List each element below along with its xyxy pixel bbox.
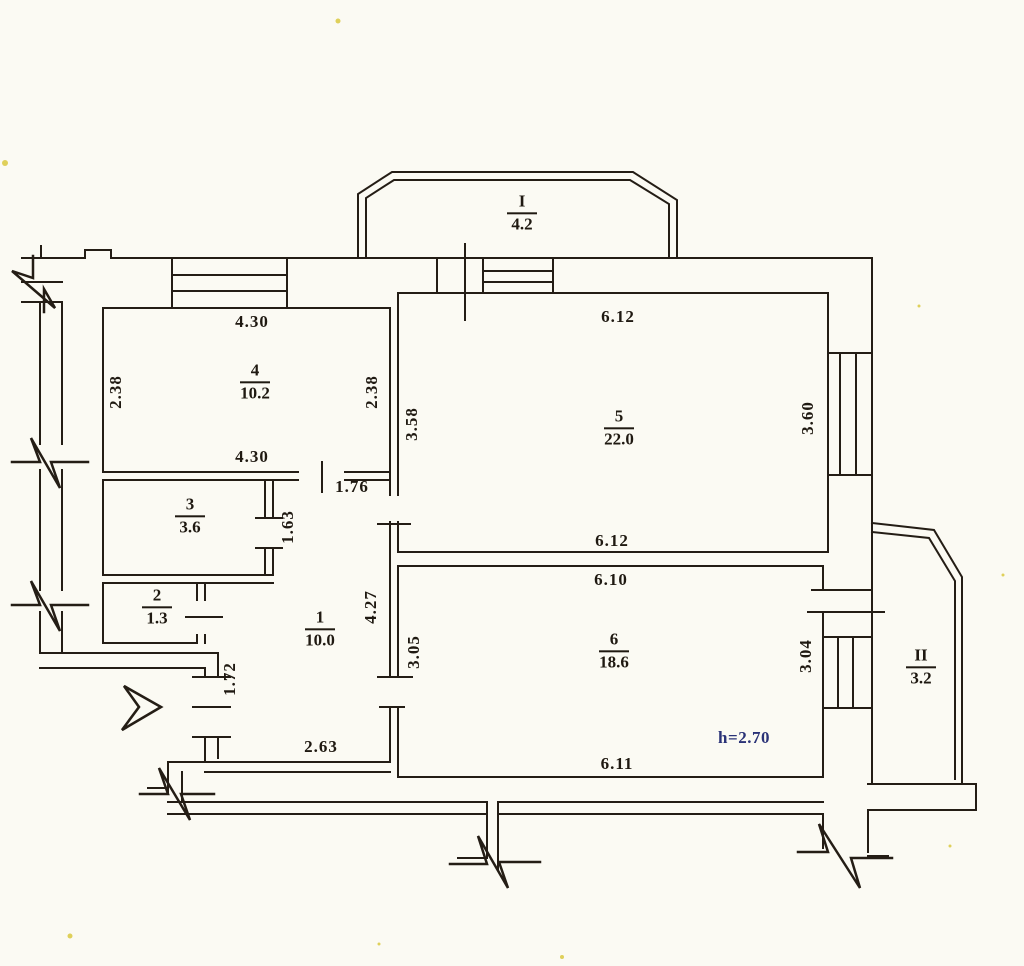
window-room4-top xyxy=(172,258,287,308)
window-room6-right xyxy=(823,637,870,708)
room-number: 2 xyxy=(142,586,172,608)
dim-hall-closet: 1.63 xyxy=(278,510,298,544)
floor-plan-page: I 4.2 4 10.2 5 22.0 3 3.6 2 1.3 1 10.0 6… xyxy=(0,0,1024,966)
dim-room5-right: 3.60 xyxy=(798,401,818,435)
room-area: 18.6 xyxy=(599,652,629,672)
dim-room4-right: 2.38 xyxy=(362,375,382,409)
dim-room5-top: 6.12 xyxy=(601,307,635,327)
balcony-number: I xyxy=(507,192,537,214)
break-marks xyxy=(12,256,892,888)
balcony-area: 3.2 xyxy=(906,668,936,688)
room-1-label: 1 10.0 xyxy=(305,608,335,649)
window-room5-right xyxy=(828,353,872,475)
room-area: 3.6 xyxy=(175,517,205,537)
room-number: 3 xyxy=(175,495,205,517)
balcony-number: II xyxy=(906,646,936,668)
floor-plan-drawing xyxy=(0,0,1024,966)
dim-room6-left: 3.05 xyxy=(404,635,424,669)
dim-room4-left: 2.38 xyxy=(106,375,126,409)
room-number: 4 xyxy=(240,361,270,383)
dim-room5-bottom: 6.12 xyxy=(595,531,629,551)
room-number: 1 xyxy=(305,608,335,630)
ceiling-height-note: h=2.70 xyxy=(718,728,770,748)
balcony-door-room5 xyxy=(437,244,465,320)
windows xyxy=(172,244,872,708)
dim-hall-bottom: 2.63 xyxy=(304,737,338,757)
room-4-label: 4 10.2 xyxy=(240,361,270,402)
dim-room5-left: 3.58 xyxy=(402,407,422,441)
dim-hall-entry: 1.72 xyxy=(220,662,240,696)
dim-room6-top: 6.10 xyxy=(594,570,628,590)
dim-room6-bottom: 6.11 xyxy=(601,754,634,774)
dim-room4-bottom: 4.30 xyxy=(235,447,269,467)
balcony-1-label: I 4.2 xyxy=(507,192,537,233)
room-area: 10.0 xyxy=(305,630,335,650)
room-area: 10.2 xyxy=(240,383,270,403)
room-6-label: 6 18.6 xyxy=(599,630,629,671)
dim-hall-right: 4.27 xyxy=(361,590,381,624)
room-2-label: 2 1.3 xyxy=(142,586,172,627)
window-room5-top xyxy=(483,258,553,293)
room-area: 22.0 xyxy=(604,429,634,449)
balcony-area: 4.2 xyxy=(507,214,537,234)
room-number: 6 xyxy=(599,630,629,652)
balcony-2-label: II 3.2 xyxy=(906,646,936,687)
entrance-arrow-icon xyxy=(122,686,161,730)
dim-room6-right: 3.04 xyxy=(796,639,816,673)
dim-hall-top: 1.76 xyxy=(335,477,369,497)
room-3-label: 3 3.6 xyxy=(175,495,205,536)
interior-walls xyxy=(103,293,828,777)
room-number: 5 xyxy=(604,407,634,429)
room-area: 1.3 xyxy=(142,608,172,628)
dim-room4-top: 4.30 xyxy=(235,312,269,332)
scan-artifacts xyxy=(2,19,1005,960)
room-5-label: 5 22.0 xyxy=(604,407,634,448)
